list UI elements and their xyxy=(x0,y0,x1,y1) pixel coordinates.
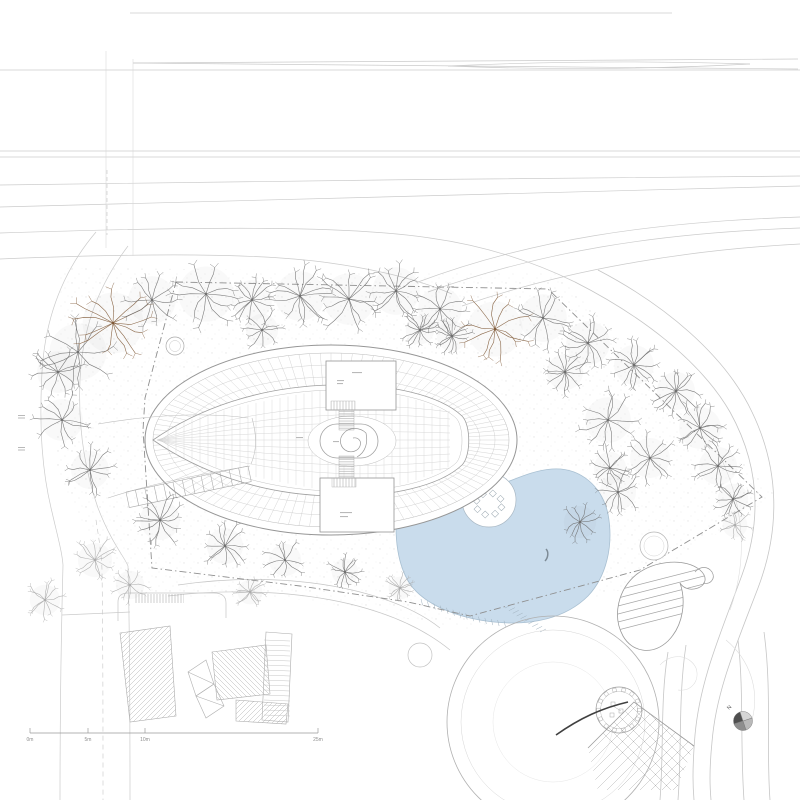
north-label: N xyxy=(726,704,733,711)
illegible-room-label xyxy=(337,380,344,381)
dimension-label-mark xyxy=(18,418,25,419)
highway-corridor xyxy=(0,13,800,306)
tree-pit xyxy=(166,337,184,355)
diamond-grid-roof xyxy=(552,690,792,790)
scale-label-25: 25m xyxy=(313,737,323,743)
tree xyxy=(28,578,67,623)
feature-circle xyxy=(408,643,432,667)
illegible-room-label xyxy=(352,372,362,373)
scale-bar: 0m 5m 10m 25m xyxy=(27,728,323,743)
north-symbol: N xyxy=(726,704,755,733)
scale-label-5: 5m xyxy=(85,737,92,743)
scale-label-10: 10m xyxy=(140,737,150,743)
illegible-room-label xyxy=(340,512,352,513)
main-building xyxy=(145,345,517,535)
illegible-room-label xyxy=(296,437,303,438)
south-courtyard xyxy=(320,478,394,532)
illegible-room-label xyxy=(337,383,343,384)
dimension-label-mark xyxy=(18,415,25,416)
dimension-label-mark xyxy=(18,447,25,448)
dimension-label-mark xyxy=(18,450,25,451)
site-plan-drawing: 0m 5m 10m 25m N xyxy=(0,0,800,800)
illegible-room-label xyxy=(333,441,339,442)
illegible-room-label xyxy=(340,516,348,517)
scale-label-0: 0m xyxy=(27,737,34,743)
site-plan-canvas: 0m 5m 10m 25m N xyxy=(0,0,800,800)
